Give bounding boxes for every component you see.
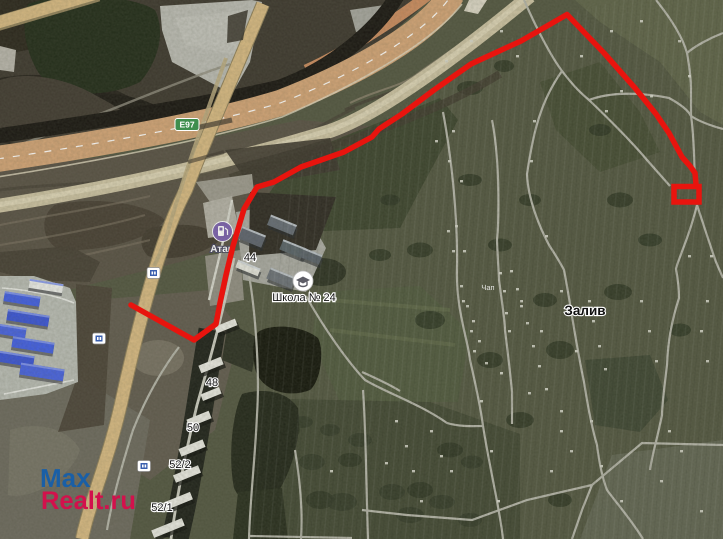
svg-text:Realt.ru: Realt.ru [41, 487, 136, 515]
svg-text:Школа № 24: Школа № 24 [272, 292, 336, 304]
svg-text:48: 48 [206, 377, 218, 389]
svg-text:Залив: Залив [564, 303, 605, 318]
svg-text:Чап: Чап [481, 283, 494, 292]
svg-text:52/2: 52/2 [169, 459, 190, 471]
svg-text:50: 50 [187, 422, 199, 434]
svg-text:44: 44 [244, 252, 256, 264]
svg-text:52/1: 52/1 [151, 502, 172, 514]
svg-text:E97: E97 [179, 120, 194, 130]
